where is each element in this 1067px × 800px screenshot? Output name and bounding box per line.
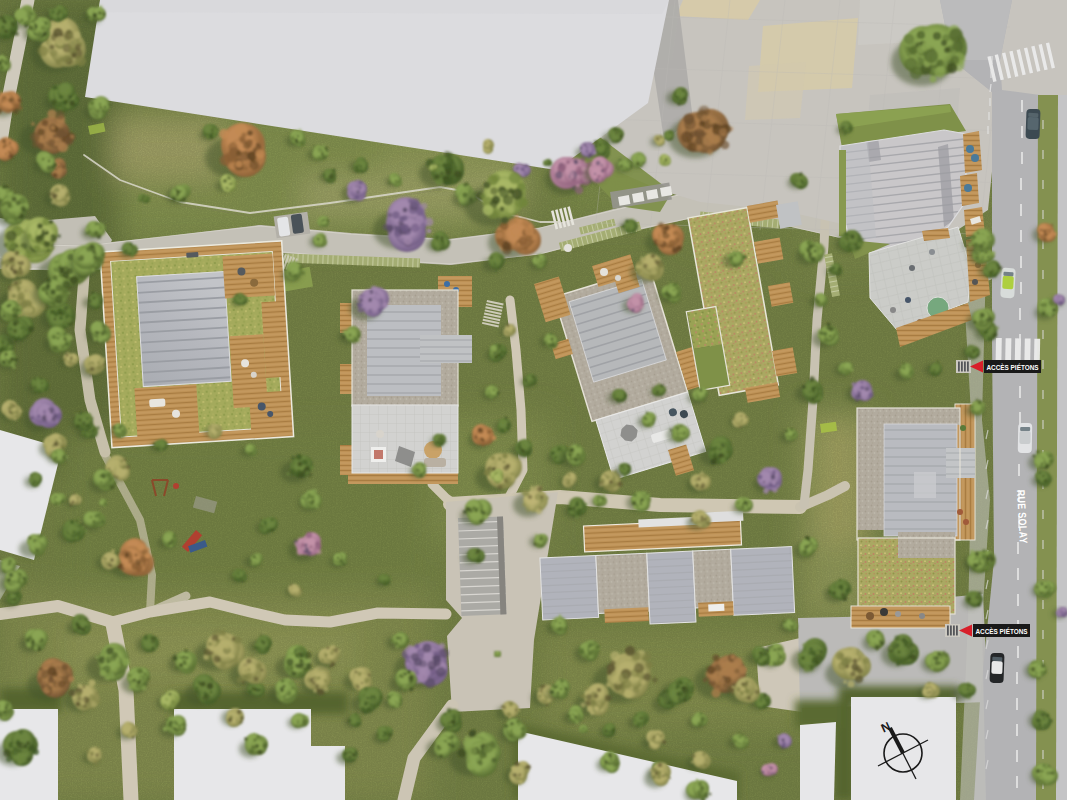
svg-text:ACCÈS PIÉTONS: ACCÈS PIÉTONS xyxy=(987,363,1040,372)
svg-text:ACCÈS PIÉTONS: ACCÈS PIÉTONS xyxy=(976,627,1029,636)
